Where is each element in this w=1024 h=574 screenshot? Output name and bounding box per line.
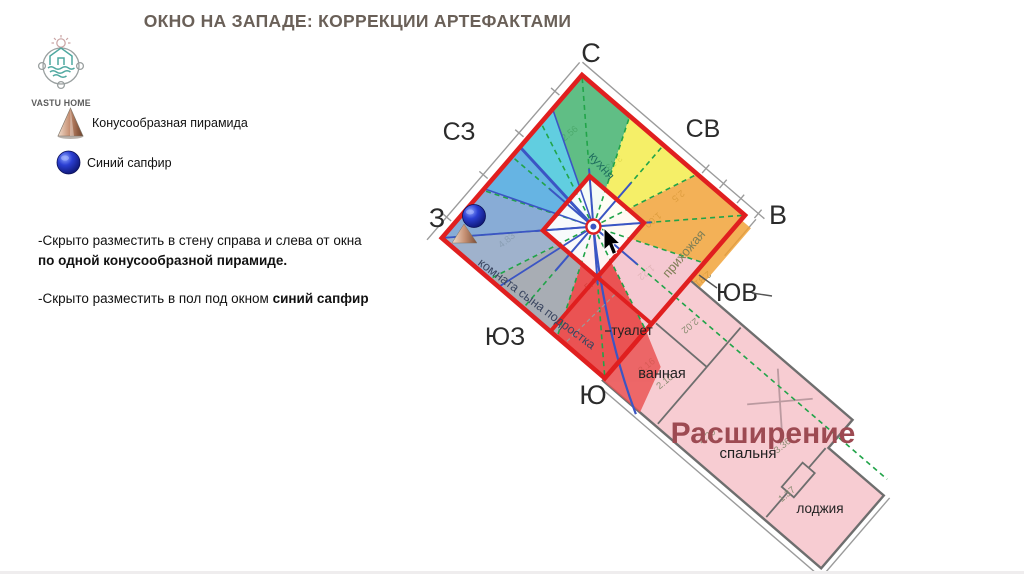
room-label-bedroom: спальня xyxy=(720,445,777,462)
sapphire-on-plan-icon xyxy=(463,205,486,228)
compass-s: Ю xyxy=(579,380,606,410)
compass-n: С xyxy=(581,38,601,68)
compass-sw: ЮЗ xyxy=(485,323,525,351)
sapphire-highlight xyxy=(466,210,474,215)
compass-ne: СВ xyxy=(686,115,721,143)
floor-plan: 2.56 3.73 2.5 1.00 1.22 2.81 4.83 5.4 2.… xyxy=(0,0,1024,574)
compass-se: ЮВ xyxy=(716,279,758,307)
room-label-loggia: лоджия xyxy=(797,501,844,516)
compass-nw: СЗ xyxy=(443,118,476,146)
compass-e: В xyxy=(769,200,787,230)
room-label-bathroom: ванная xyxy=(638,366,686,382)
room-label-toilet: туалет xyxy=(611,323,653,338)
compass-w: З xyxy=(429,203,445,233)
presentation-slide: { "slide": { "title": "ОКНО НА ЗАПАДЕ: К… xyxy=(0,0,1024,574)
